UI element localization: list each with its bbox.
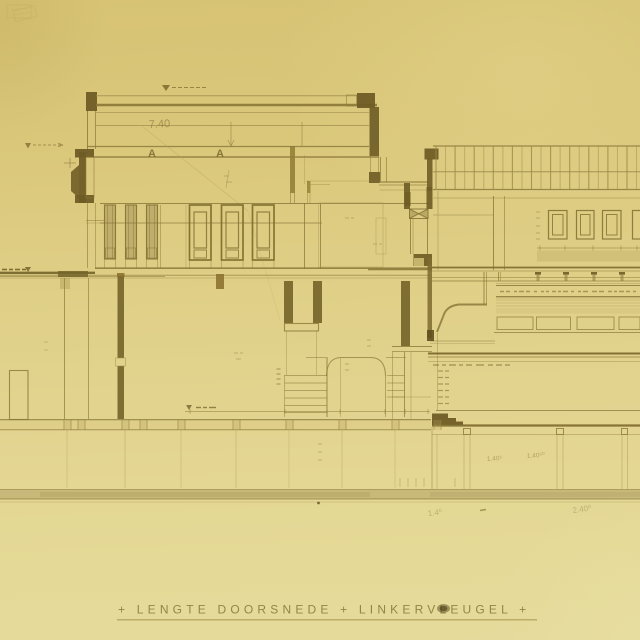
svg-text:1.40⁵: 1.40⁵ [487,455,503,463]
svg-text:2.40⁰: 2.40⁰ [572,503,592,515]
svg-text:1.40⁵⁰: 1.40⁵⁰ [527,451,546,460]
svg-text:7.40: 7.40 [149,118,171,131]
svg-text:A: A [148,148,156,160]
svg-text:1.4⁰: 1.4⁰ [427,508,442,518]
svg-text:A: A [216,148,224,160]
svg-text:+ LENGTE DOORSNEDE + LINKERVLE: + LENGTE DOORSNEDE + LINKERVLEUGEL + [118,603,530,617]
